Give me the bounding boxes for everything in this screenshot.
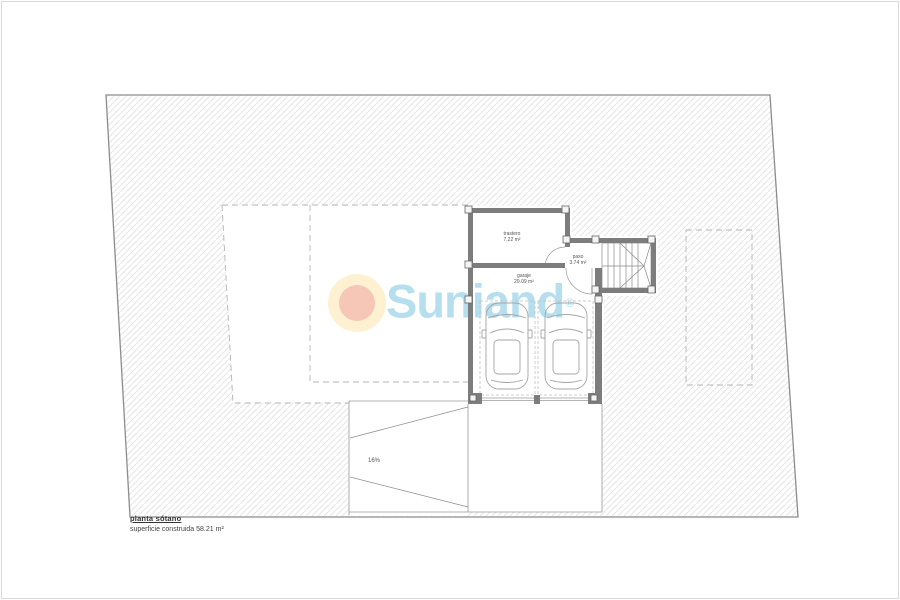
driveway-lines: [349, 401, 602, 515]
room-area-storage: 7.22 m²: [504, 237, 521, 243]
parcel-boundary: [106, 95, 798, 517]
column-markers: [465, 206, 655, 401]
pier-garage-front-middle: [534, 395, 540, 404]
plan-title: planta sótano: [130, 514, 224, 523]
room-area-hall: 3.74 m²: [570, 260, 587, 266]
left-inner-dashed-outline: [310, 205, 468, 382]
wall-stair-right: [651, 243, 656, 293]
dashed-outlines: [222, 205, 752, 403]
room-area-garage: 29.09 m²: [514, 279, 534, 285]
ramp-slope-lines: [350, 407, 468, 507]
wall-left-upper: [468, 213, 473, 268]
left-outer-dashed-outline: [222, 205, 468, 403]
car-1: [482, 303, 532, 389]
floor-plan-linework: 16%: [0, 0, 900, 600]
building-walls: [468, 208, 656, 404]
ramp: 16%: [350, 407, 468, 507]
wall-top: [468, 208, 570, 213]
door-arcs: [545, 247, 592, 294]
wall-stair-bottom: [597, 288, 656, 293]
wall-storage-bottom: [468, 263, 565, 268]
plan-built-area: superficie construida 58.21 m²: [130, 526, 224, 533]
wall-garage-left: [468, 268, 473, 393]
wall-stair-top: [570, 238, 656, 243]
right-dashed-outline: [686, 230, 752, 385]
title-block: planta sótano superficie construida 58.2…: [130, 514, 224, 533]
garage-door-arc: [566, 268, 592, 294]
ramp-slope-label: 16%: [368, 458, 381, 464]
car-2: [541, 303, 591, 389]
staircase: [602, 243, 651, 288]
